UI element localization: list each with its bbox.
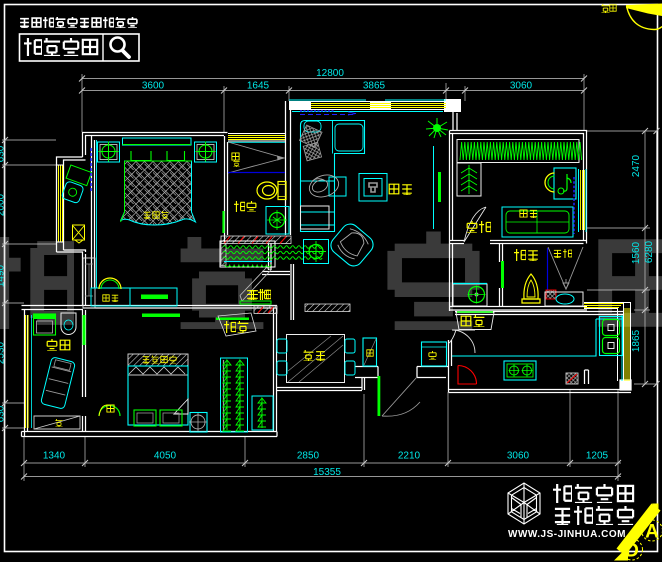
svg-text:12800: 12800 bbox=[316, 68, 344, 79]
svg-text:WWW.JS-JINHUA.COM: WWW.JS-JINHUA.COM bbox=[508, 529, 626, 540]
svg-text:2850: 2850 bbox=[297, 451, 320, 462]
svg-text:1340: 1340 bbox=[43, 451, 66, 462]
svg-text:630: 630 bbox=[0, 145, 7, 162]
svg-text:3060: 3060 bbox=[510, 81, 533, 92]
svg-text:2210: 2210 bbox=[398, 451, 421, 462]
svg-text:1560: 1560 bbox=[631, 241, 642, 264]
svg-text:2530: 2530 bbox=[0, 341, 7, 364]
svg-text:3600: 3600 bbox=[142, 81, 165, 92]
svg-text:1490: 1490 bbox=[0, 264, 7, 287]
svg-text:2470: 2470 bbox=[631, 154, 642, 177]
svg-text:1865: 1865 bbox=[631, 329, 642, 352]
svg-text:D: D bbox=[625, 541, 639, 562]
svg-text:A: A bbox=[645, 522, 659, 543]
svg-text:1205: 1205 bbox=[586, 451, 609, 462]
svg-text:3060: 3060 bbox=[507, 451, 530, 462]
svg-text:4050: 4050 bbox=[154, 451, 177, 462]
svg-text:1645: 1645 bbox=[247, 81, 270, 92]
svg-text:630: 630 bbox=[0, 405, 7, 422]
svg-text:15355: 15355 bbox=[313, 467, 341, 478]
svg-text:3865: 3865 bbox=[363, 81, 386, 92]
svg-text:2000: 2000 bbox=[0, 193, 7, 216]
svg-text:6280: 6280 bbox=[644, 240, 655, 263]
